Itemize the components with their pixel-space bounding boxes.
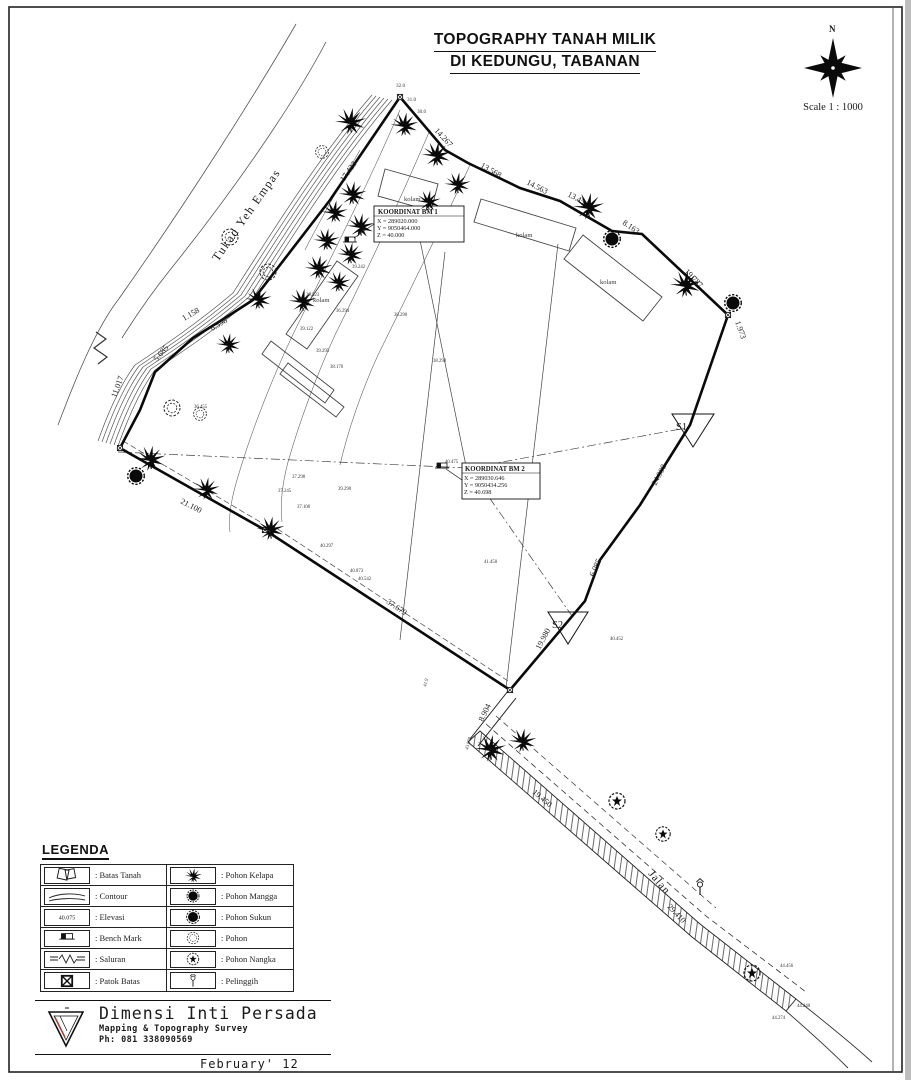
- svg-text:39.242: 39.242: [352, 265, 366, 270]
- legend-item-pohon: : Pohon: [167, 928, 293, 949]
- dimension-labels: 17.423 14.267 13.568 14.563 13.454 8.163…: [109, 126, 747, 925]
- legend-item-contour: : Contour: [41, 886, 166, 907]
- legend-item-patok-batas: : Patok Batas: [41, 970, 166, 991]
- svg-text:37.679: 37.679: [385, 597, 409, 617]
- parcel-boundary: [120, 97, 728, 690]
- legend-item-elevasi: 40.075 : Elevasi: [41, 907, 166, 928]
- svg-text:40.542: 40.542: [358, 577, 372, 582]
- svg-text:21.100: 21.100: [179, 497, 203, 515]
- tree-icon: [316, 146, 329, 159]
- legend: LEGENDA : Batas Tanah :: [40, 841, 294, 992]
- channel-icon: [44, 951, 90, 968]
- palm-tree-icon: [335, 108, 366, 135]
- title-line-2: DI KEDUNGU, TABANAN: [450, 52, 640, 74]
- mango-tree-icon: [604, 231, 621, 248]
- company-phone: Ph: 081 338090569: [99, 1035, 318, 1046]
- breadfruit-tree-icon: [170, 909, 216, 926]
- svg-text:37.298: 37.298: [292, 475, 306, 480]
- svg-text:40.075: 40.075: [59, 916, 76, 922]
- svg-text:kolam: kolam: [516, 232, 533, 239]
- svg-text:KOORDINAT BM 1: KOORDINAT BM 1: [378, 209, 438, 216]
- svg-text:Y = 9050434.256: Y = 9050434.256: [464, 482, 507, 489]
- pond-labels: kolam kolam kolam kolam: [313, 196, 617, 304]
- stake-icon: [44, 972, 90, 989]
- company-tagline: Mapping & Topography Survey: [99, 1024, 318, 1035]
- palm-tree-icon: [170, 867, 216, 884]
- svg-text:37.245: 37.245: [278, 489, 292, 494]
- tree-icon: [164, 400, 180, 416]
- svg-text:X = 289030.646: X = 289030.646: [464, 475, 504, 482]
- company-logo: [43, 1004, 89, 1050]
- shrine-icon: [696, 879, 703, 895]
- svg-text:44.456: 44.456: [780, 964, 794, 969]
- legend-column-left: : Batas Tanah : Contour 40.075 : Eleva: [41, 865, 167, 991]
- legend-item-saluran: : Saluran: [41, 949, 166, 970]
- palm-tree-icon: [390, 113, 418, 137]
- elevation-icon: 40.075: [44, 909, 90, 926]
- legend-item-pohon-kelapa: : Pohon Kelapa: [167, 865, 293, 886]
- svg-text:6.085: 6.085: [588, 557, 604, 577]
- benchmark-icon: [44, 930, 90, 947]
- svg-text:S2: S2: [552, 620, 563, 631]
- scan-edge-artifact: [905, 0, 911, 1080]
- svg-text:40.297: 40.297: [320, 544, 334, 549]
- svg-text:24.998: 24.998: [650, 463, 669, 487]
- svg-text:37.106: 37.106: [297, 505, 311, 510]
- svg-text:11.017: 11.017: [109, 375, 125, 399]
- survey-sheet: Tukad Yeh Empas 32.0 31.0 30.0: [0, 0, 911, 1080]
- svg-text:40.475: 40.475: [445, 460, 459, 465]
- legend-item-batas-tanah: : Batas Tanah: [41, 865, 166, 886]
- pond-outlines: [286, 169, 662, 349]
- boundary-icon: [44, 867, 90, 884]
- svg-text:40.452: 40.452: [610, 637, 624, 642]
- svg-text:44.274: 44.274: [772, 1016, 786, 1021]
- svg-text:39.295: 39.295: [316, 349, 330, 354]
- svg-text:30.0: 30.0: [417, 109, 426, 115]
- scale-label: Scale 1 : 1000: [803, 102, 863, 113]
- palm-tree-icon: [508, 729, 536, 753]
- legend-item-pohon-sukun: : Pohon Sukun: [167, 907, 293, 928]
- svg-text:Z = 40.000: Z = 40.000: [377, 232, 404, 239]
- shrine-icon: [170, 972, 216, 989]
- palm-tree-icon: [216, 333, 241, 354]
- river-name-label: Tukad Yeh Empas: [209, 166, 283, 264]
- palm-tree-icon: [337, 242, 363, 264]
- svg-text:36.294: 36.294: [336, 309, 350, 314]
- svg-text:17.423: 17.423: [338, 160, 358, 184]
- svg-text:38.298: 38.298: [433, 359, 447, 364]
- river-bank-lines: [58, 24, 326, 425]
- palm-tree-icon: [304, 256, 332, 280]
- legend-item-bench-mark: : Bench Mark: [41, 928, 166, 949]
- palm-tree-icon: [245, 287, 271, 309]
- svg-text:38.170: 38.170: [330, 365, 344, 370]
- palm-tree-icon: [321, 200, 347, 222]
- company-name: Dimensi Inti Persada: [99, 1004, 318, 1024]
- contour-bundle: [98, 95, 392, 446]
- building-outlines: [262, 341, 344, 417]
- legend-column-right: : Pohon Kelapa : Pohon Mangga : Pohon Su…: [167, 865, 293, 991]
- company-text: Dimensi Inti Persada Mapping & Topograph…: [99, 1004, 318, 1050]
- palm-tree-icon: [444, 172, 470, 194]
- svg-text:13.568: 13.568: [479, 161, 503, 180]
- legend-item-pohon-nangka: : Pohon Nangka: [167, 949, 293, 970]
- svg-text:39.290: 39.290: [338, 487, 352, 492]
- svg-text:S1: S1: [676, 422, 687, 433]
- palm-tree-icon: [193, 477, 219, 499]
- svg-text:KOORDINAT BM 2: KOORDINAT BM 2: [465, 466, 525, 473]
- svg-text:41.9: 41.9: [423, 678, 430, 688]
- svg-text:1.158: 1.158: [181, 306, 201, 323]
- legend-table: : Batas Tanah : Contour 40.075 : Eleva: [40, 864, 294, 992]
- contour-icon: [44, 888, 90, 905]
- svg-text:X = 289020.000: X = 289020.000: [377, 218, 417, 225]
- bm2-box: KOORDINAT BM 2 X = 289030.646 Y = 905043…: [435, 463, 540, 499]
- benchmark-icon: [343, 237, 357, 242]
- svg-text:kolam: kolam: [404, 196, 421, 203]
- svg-text:19.980: 19.980: [534, 627, 553, 651]
- compass-rose: N Scale 1 : 1000: [803, 24, 863, 113]
- svg-text:Z = 40.698: Z = 40.698: [464, 489, 491, 496]
- svg-text:Y = 9050464.000: Y = 9050464.000: [377, 225, 420, 232]
- compass-north-label: N: [829, 24, 836, 34]
- legend-item-pelinggih: : Pelinggih: [167, 970, 293, 991]
- svg-text:44.240: 44.240: [797, 1004, 811, 1009]
- legend-heading: LEGENDA: [42, 842, 109, 860]
- svg-text:kolam: kolam: [600, 279, 617, 286]
- sheet-date: February' 12: [200, 1057, 299, 1071]
- svg-text:32.0: 32.0: [396, 83, 405, 89]
- legend-item-pohon-mangga: : Pohon Mangga: [167, 886, 293, 907]
- jackfruit-tree-icon: [656, 827, 670, 841]
- breadfruit-tree-icon: [725, 295, 742, 312]
- mango-tree-icon: [170, 888, 216, 905]
- svg-text:41.450: 41.450: [484, 560, 498, 565]
- mango-tree-icon: [128, 468, 145, 485]
- tree-icon: [170, 930, 216, 947]
- palm-tree-icon: [326, 271, 351, 292]
- title-line-1: TOPOGRAPHY TANAH MILIK: [434, 30, 656, 52]
- svg-text:40.873: 40.873: [350, 569, 364, 574]
- jackfruit-tree-icon: [609, 793, 625, 809]
- svg-text:38.290: 38.290: [394, 313, 408, 318]
- svg-text:39.122: 39.122: [300, 327, 314, 332]
- svg-text:31.0: 31.0: [407, 97, 416, 103]
- road: [468, 716, 872, 1068]
- sheet-title: TOPOGRAPHY TANAH MILIK DI KEDUNGU, TABAN…: [390, 30, 700, 74]
- jackfruit-tree-icon: [170, 951, 216, 968]
- company-block: Dimensi Inti Persada Mapping & Topograph…: [35, 1000, 331, 1055]
- boundary-stakes: [117, 94, 730, 692]
- svg-text:1.973: 1.973: [733, 320, 748, 340]
- stream-symbol: [94, 332, 107, 364]
